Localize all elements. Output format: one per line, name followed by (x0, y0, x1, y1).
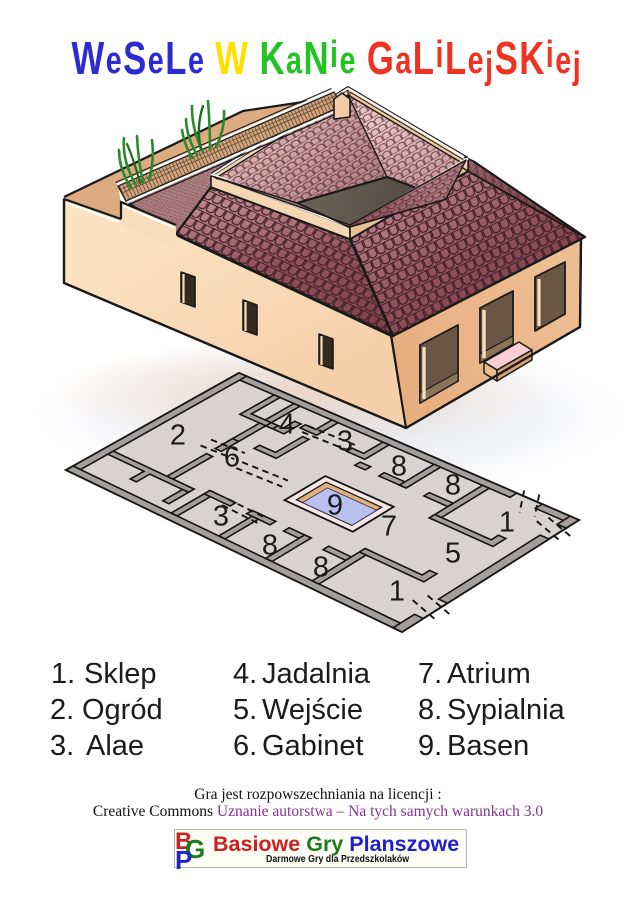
svg-text:8: 8 (391, 451, 407, 483)
svg-text:1: 1 (499, 507, 515, 539)
svg-text:7: 7 (381, 511, 397, 543)
svg-text:9: 9 (327, 490, 343, 522)
svg-text:8: 8 (262, 530, 278, 562)
svg-text:2: 2 (170, 420, 186, 452)
svg-text:8: 8 (445, 470, 461, 502)
svg-text:P: P (175, 845, 192, 871)
svg-text:5: 5 (445, 538, 461, 570)
svg-text:4: 4 (279, 409, 295, 441)
svg-text:3: 3 (213, 501, 229, 533)
svg-text:6: 6 (224, 442, 240, 474)
svg-text:3: 3 (337, 426, 353, 458)
svg-text:8: 8 (313, 552, 329, 584)
svg-text:1: 1 (389, 576, 405, 608)
